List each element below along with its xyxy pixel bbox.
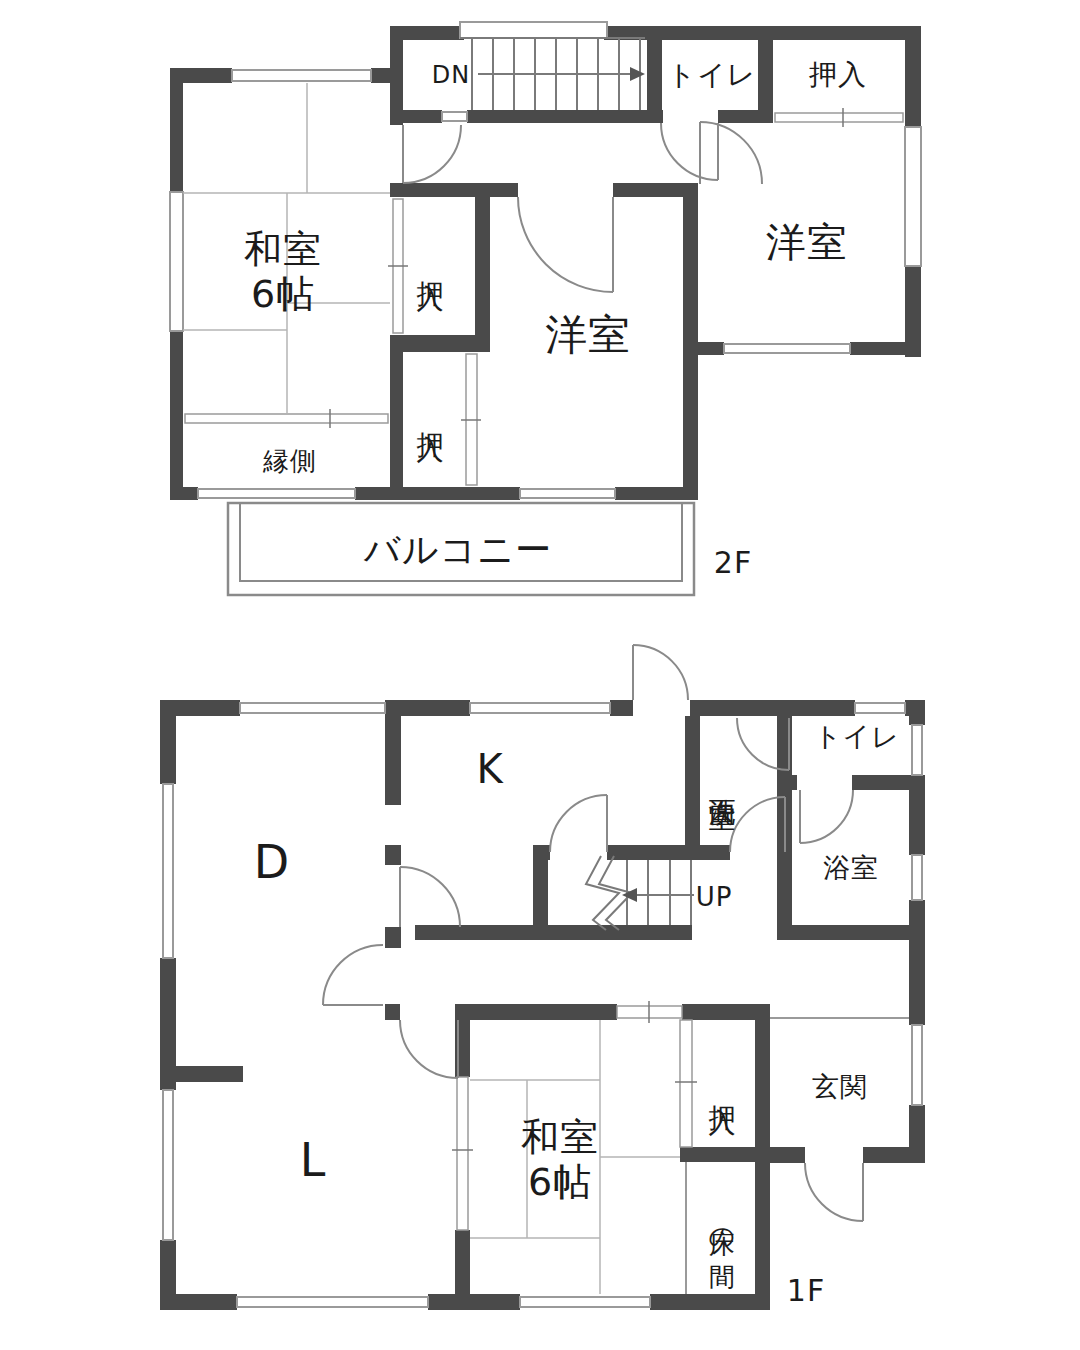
room-label-1f-kitchen: K — [476, 746, 503, 793]
room-label-2f-yoshitsu-right: 洋室 — [766, 219, 848, 266]
room-label-2f-yoshitsu-center: 洋室 — [545, 310, 631, 360]
stairs-2f — [460, 38, 645, 110]
room-label-2f-oshiire-lower: 押入 — [414, 410, 446, 416]
room-label-2f-balcony: バルコニー — [364, 529, 552, 571]
doors-2f — [403, 122, 762, 292]
floor-1f-plan — [160, 645, 925, 1310]
floor-tag-2f: 2F — [714, 545, 752, 580]
room-label-1f-genkan: 玄関 — [812, 1071, 868, 1103]
room-label-2f-oshiire-upper: 押入 — [414, 259, 446, 265]
sliding-door-ticks-2f — [330, 108, 843, 428]
stairs-1f — [586, 856, 694, 930]
stairs-down-label: DN — [432, 61, 470, 89]
room-label-1f-living: L — [300, 1133, 327, 1187]
room-label-2f-toilet: トイレ — [668, 58, 757, 91]
floor-tag-1f: 1F — [787, 1273, 825, 1308]
room-label-2f-washitsu: 和室 6帖 — [244, 227, 322, 317]
room-label-1f-bath: 浴室 — [823, 852, 879, 884]
room-label-1f-toilet: トイレ — [814, 721, 900, 753]
walls-1f — [160, 700, 925, 1310]
room-label-1f-tokonoma: 床の間 — [707, 1209, 738, 1248]
room-label-1f-oshiire: 押入 — [706, 1083, 738, 1089]
room-label-2f-oshiire-top: 押入 — [809, 58, 867, 91]
room-label-1f-dining: D — [254, 835, 290, 889]
room-label-1f-washitsu: 和室 6帖 — [521, 1115, 599, 1205]
stairs-down-arrowhead — [630, 67, 645, 81]
stairs-up-label: UP — [696, 882, 733, 913]
room-label-2f-engawa: 縁側 — [263, 446, 317, 477]
room-label-1f-senmen: 洗面室 — [706, 777, 738, 786]
floorplan-canvas: DN トイレ 押入 和室 6帖 押入 押入 洋室 洋室 縁側 バルコニー 2F … — [0, 0, 1080, 1350]
